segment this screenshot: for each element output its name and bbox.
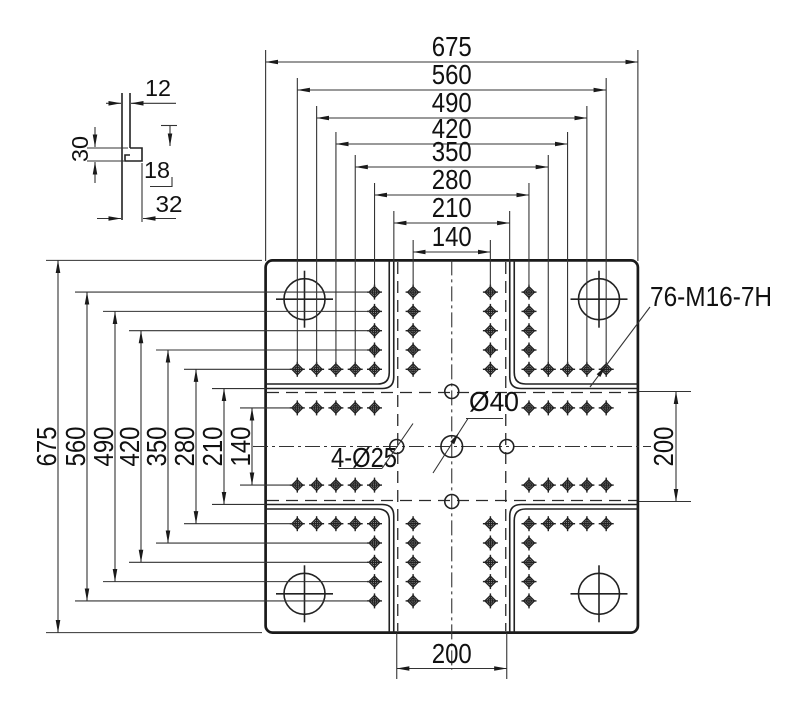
platen-engineering-drawing: 675560490420350280210140 675560490420350… (0, 0, 792, 702)
dimension-label: 280 (169, 427, 200, 467)
dimension-label: 200 (432, 638, 472, 669)
dimension-label: 140 (432, 221, 472, 252)
dimension-label: 210 (197, 427, 228, 467)
dimension-label: 675 (432, 31, 472, 62)
dimension-label: 200 (648, 427, 679, 467)
dimension-label: Ø40 (469, 386, 519, 417)
dimension-label: 140 (225, 427, 256, 467)
dimension-label: 350 (432, 136, 472, 167)
dimension-label: 30 (67, 136, 93, 162)
dimension-label: 560 (432, 59, 472, 90)
dimension-label: 18 (144, 157, 170, 183)
background (0, 0, 792, 702)
drawing-canvas: 675560490420350280210140 675560490420350… (0, 0, 792, 702)
dimension-label: 210 (432, 192, 472, 223)
dimension-label: 12 (145, 75, 171, 101)
dimension-label: 280 (432, 164, 472, 195)
dimension-label: 560 (60, 427, 91, 467)
dimension-label: 675 (31, 427, 62, 467)
dimension-label: 76-M16-7H (650, 281, 772, 312)
dimension-label: 32 (156, 191, 183, 217)
dimension-label: 350 (141, 427, 172, 467)
